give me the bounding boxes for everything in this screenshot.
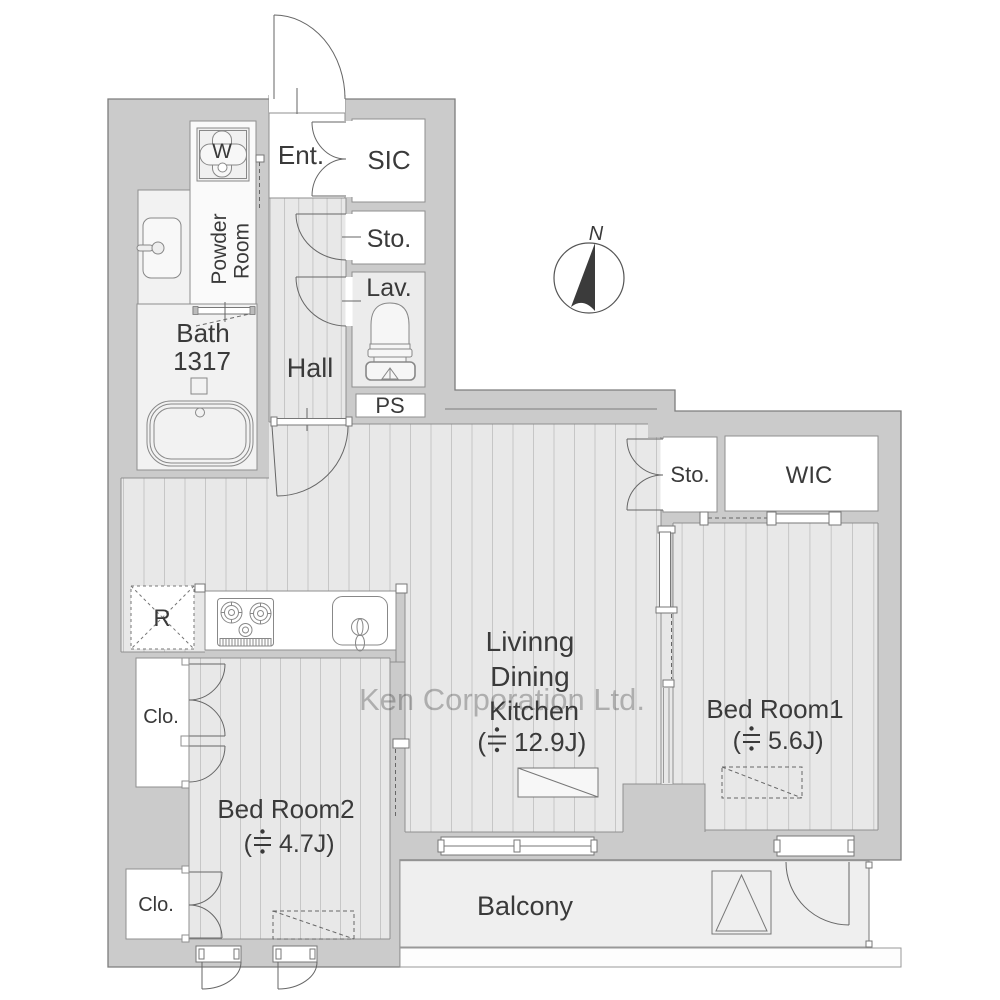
- svg-text:Balcony: Balcony: [477, 891, 574, 921]
- svg-text:Bath: Bath: [176, 318, 230, 348]
- svg-text:Clo.: Clo.: [138, 894, 174, 916]
- svg-text:5.6J): 5.6J): [768, 727, 824, 755]
- svg-text:N: N: [589, 223, 604, 245]
- svg-text:SIC: SIC: [367, 145, 410, 175]
- svg-text:PS: PS: [375, 393, 404, 418]
- svg-text:Ent.: Ent.: [278, 140, 324, 170]
- svg-text:W: W: [212, 140, 232, 163]
- svg-text:Bed Room1: Bed Room1: [706, 694, 843, 724]
- svg-text:Powder: Powder: [208, 213, 231, 284]
- svg-text:(: (: [477, 727, 486, 757]
- svg-text:Ken Corporation Ltd.: Ken Corporation Ltd.: [359, 682, 645, 717]
- svg-text:Sto.: Sto.: [670, 462, 709, 487]
- svg-text:Room: Room: [231, 223, 254, 279]
- svg-text:Clo.: Clo.: [143, 706, 179, 728]
- svg-text:Lav.: Lav.: [366, 274, 411, 302]
- svg-text:WIC: WIC: [786, 462, 833, 489]
- svg-text:R: R: [153, 605, 170, 632]
- svg-text:12.9J): 12.9J): [514, 727, 586, 757]
- svg-text:(: (: [244, 830, 253, 858]
- svg-text:4.7J): 4.7J): [279, 830, 335, 858]
- svg-text:Bed Room2: Bed Room2: [217, 794, 354, 824]
- svg-text:Livinng: Livinng: [486, 626, 575, 657]
- svg-text:(: (: [733, 727, 742, 755]
- svg-text:Sto.: Sto.: [367, 225, 411, 253]
- svg-text:Hall: Hall: [287, 353, 334, 383]
- svg-text:1317: 1317: [173, 346, 231, 376]
